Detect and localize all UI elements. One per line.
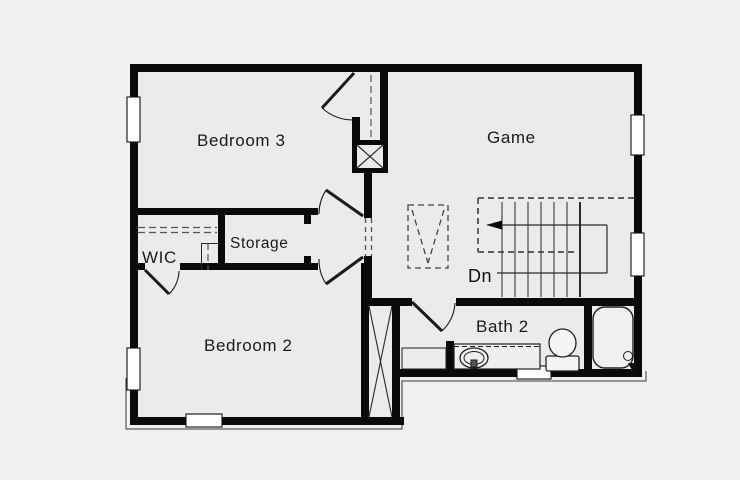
- stairs-down-label: Dn: [468, 266, 492, 286]
- wall-storage-right-a: [304, 208, 311, 224]
- floor-plan-canvas: Dn: [0, 0, 740, 480]
- label-bath2: Bath 2: [476, 317, 529, 336]
- wall-tub-partition: [584, 306, 592, 369]
- wall-wic-storage-divider: [218, 208, 225, 270]
- chase-box-icon: [357, 145, 383, 168]
- floor-plan: Dn: [0, 0, 740, 480]
- label-bedroom2: Bedroom 2: [204, 336, 293, 355]
- wall-bedroom2-top-b: [180, 263, 318, 270]
- wall-right: [634, 64, 642, 377]
- sink-vanity-icon: [454, 344, 540, 369]
- wall-storage-right-b: [304, 256, 311, 270]
- window-bedroom3-left: [127, 97, 140, 142]
- wall-closet-left: [352, 117, 360, 140]
- label-storage: Storage: [230, 235, 289, 252]
- window-bedroom2-left: [127, 348, 140, 390]
- label-game: Game: [487, 128, 536, 147]
- wall-closet-right: [380, 72, 388, 140]
- label-wic: WIC: [142, 248, 177, 267]
- wall-hall-right-upper: [364, 172, 372, 218]
- window-game-lower: [631, 233, 644, 276]
- wall-bath-top-b: [456, 298, 642, 306]
- wall-vanity-stub: [446, 341, 454, 369]
- wall-bedroom2-right: [361, 263, 369, 425]
- bathtub-icon: [593, 307, 637, 371]
- wall-bath-top-a: [364, 298, 412, 306]
- wall-chase-right: [392, 306, 400, 425]
- window-bedroom2-bottom: [186, 414, 222, 427]
- toilet-icon: [546, 329, 579, 371]
- window-game-upper: [631, 115, 644, 155]
- wall-top: [130, 64, 642, 72]
- label-bedroom3: Bedroom 3: [197, 131, 286, 150]
